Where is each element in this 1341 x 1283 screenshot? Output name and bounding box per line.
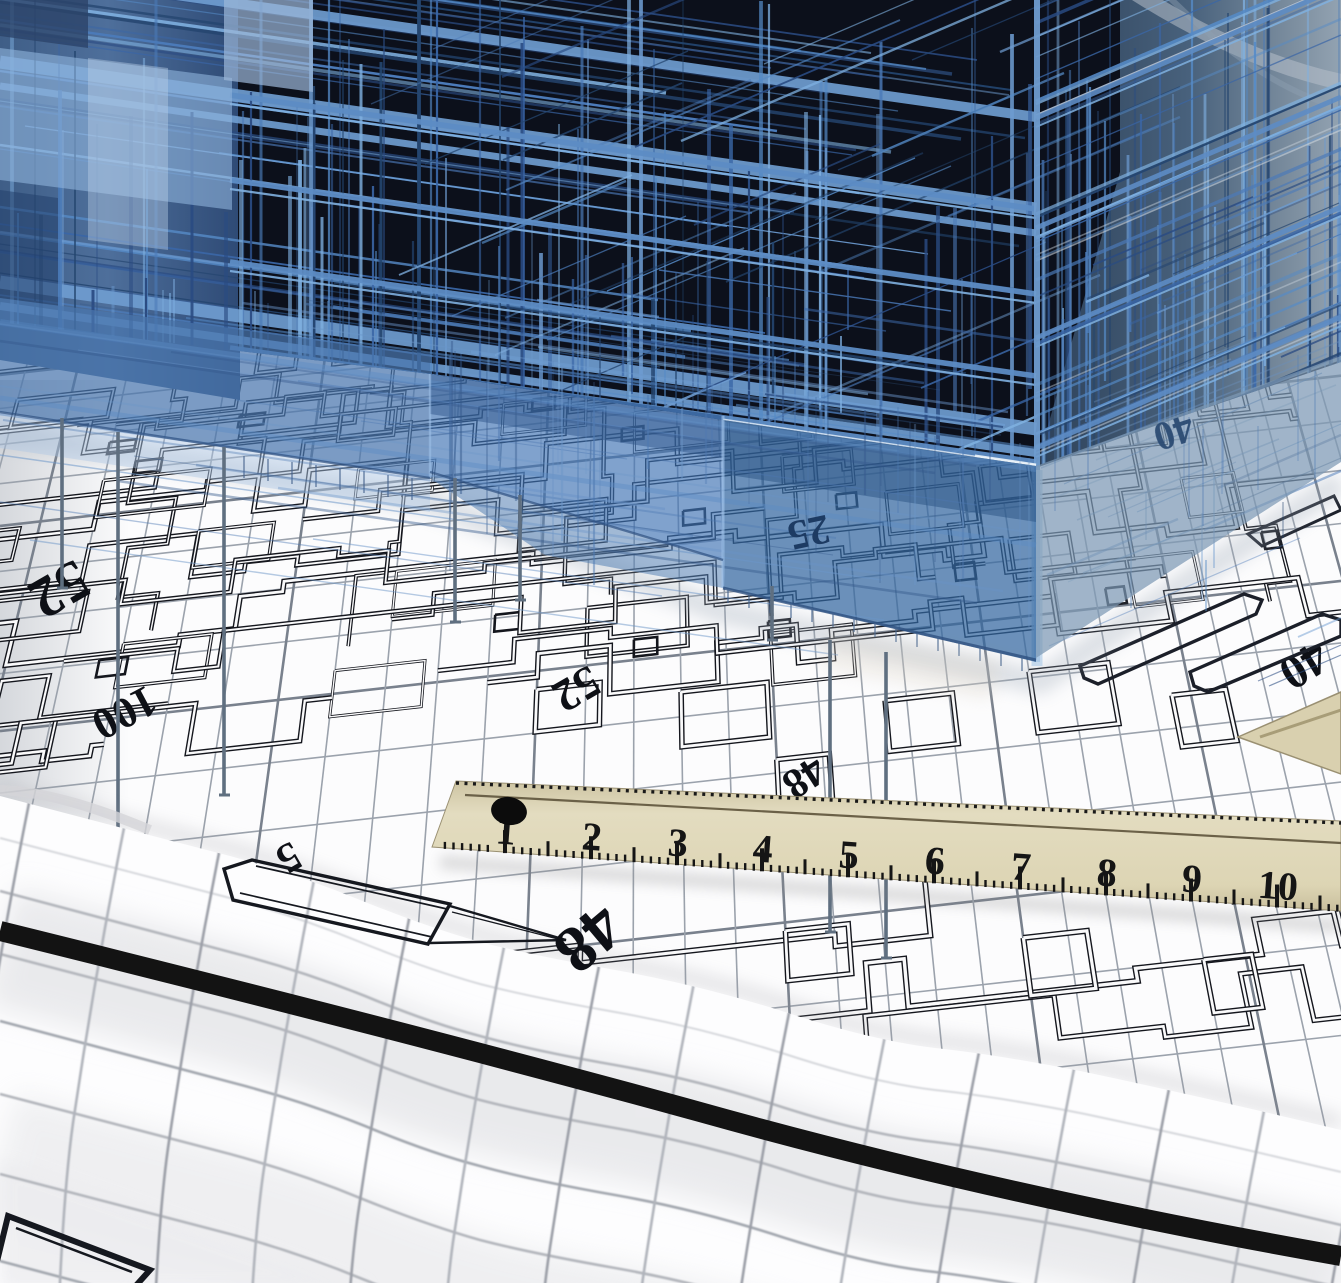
svg-text:3: 3 <box>666 819 689 865</box>
svg-text:7: 7 <box>1009 843 1032 889</box>
svg-text:4: 4 <box>751 825 774 871</box>
svg-text:8: 8 <box>1095 849 1118 895</box>
svg-text:6: 6 <box>923 837 946 883</box>
svg-text:2: 2 <box>580 813 603 859</box>
svg-text:5: 5 <box>837 831 860 877</box>
svg-text:9: 9 <box>1180 855 1203 901</box>
svg-text:10: 10 <box>1256 862 1299 910</box>
